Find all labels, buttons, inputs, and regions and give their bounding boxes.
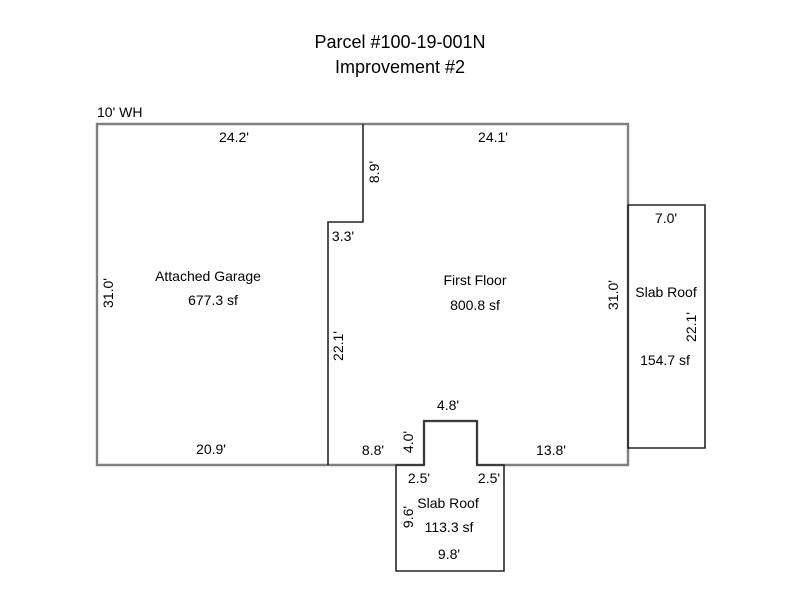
dim-bottom-slab-side: 9.6' [400,506,416,528]
firstfloor-area: 800.8 sf [450,297,500,313]
dim-notch-width: 4.8' [437,397,459,413]
dim-firstfloor-bottom-left: 8.8' [362,442,384,458]
firstfloor-label: First Floor [444,272,507,288]
dim-garage-bottom: 20.9' [196,441,226,457]
dim-firstfloor-right: 31.0' [605,280,621,310]
bottom-slab-label: Slab Roof [417,495,479,511]
floorplan-sketch: Parcel #100-19-001N Improvement #2 10' W… [0,0,800,600]
dim-bottom-slab-bottom: 9.8' [438,546,460,562]
dim-bottom-slab-inset-left: 2.5' [408,470,430,486]
dim-garage-top: 24.2' [219,129,249,145]
dim-step-depth: 8.9' [366,161,382,183]
dim-firstfloor-bottom-right: 13.8' [536,442,566,458]
dim-divider-wall: 22.1' [330,331,346,361]
dim-garage-left: 31.0' [100,278,116,308]
parcel-sketch-page: Parcel #100-19-001N Improvement #2 10' W… [0,0,800,600]
wall-height-note: 10' WH [97,104,142,120]
garage-area: 677.3 sf [188,292,238,308]
garage-label: Attached Garage [155,268,261,284]
dim-firstfloor-top: 24.1' [478,129,508,145]
dim-bottom-slab-inset-right: 2.5' [478,470,500,486]
right-slab-area: 154.7 sf [640,352,690,368]
right-slab-label: Slab Roof [635,284,697,300]
dim-notch-depth: 4.0' [400,431,416,453]
dim-step-width: 3.3' [332,228,354,244]
garage-divider-wall [328,124,363,465]
dim-right-slab-side: 22.1' [683,312,699,342]
page-subtitle: Improvement #2 [335,57,465,77]
dim-right-slab-top: 7.0' [655,210,677,226]
page-title: Parcel #100-19-001N [314,32,485,52]
bottom-slab-area: 113.3 sf [425,519,474,535]
